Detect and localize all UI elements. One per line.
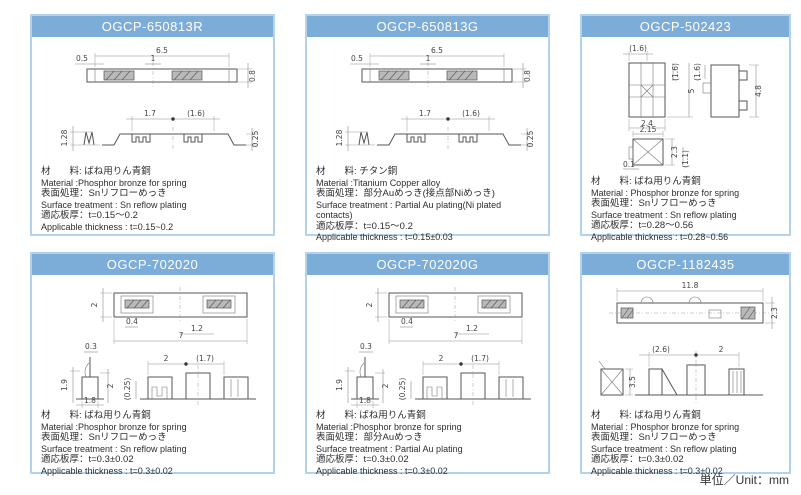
material-ja: 材 料: ばね用りん青銅 [41, 410, 264, 422]
dim-label: 1 [150, 54, 155, 63]
datasheet-page: OGCP-650813R [0, 0, 801, 495]
dim-label: 2 [365, 302, 374, 307]
surface-treatment-en: Surface treatment : Partial Au plating(N… [316, 200, 539, 221]
thickness-ja: 適応板厚：t=0.15～0.2 [316, 221, 539, 233]
front-view: 2 (1.7) (0.25) [398, 354, 531, 405]
dim-label: 1.28 [335, 129, 344, 146]
dim-label: 2.15 [639, 125, 656, 134]
unit-label: 単位／Unit：mm [700, 471, 789, 488]
dim-label: (0.25) [398, 378, 407, 401]
spec-block: 材 料: ばね用りん青銅 Material :Phosphor bronze f… [32, 166, 273, 232]
side-view: 1.7 (1.6) 1.28 0.25 [335, 109, 535, 151]
thickness-en: Applicable thickness : t=0.15~0.2 [41, 222, 264, 233]
surface-treatment-ja: 表面処理：Snリフローめっき [591, 432, 780, 444]
dim-label: 1.9 [60, 379, 69, 391]
material-en: Material : Phosphor bronze for spring [591, 422, 780, 433]
material-en: Material :Phosphor bronze for spring [41, 178, 264, 189]
side-view: 1.7 (1.6) 1.28 0.25 [60, 109, 260, 151]
dim-label: 1.7 [419, 109, 431, 118]
dim-label: 6.5 [156, 46, 168, 55]
panel-body: 6.5 0.5 1 0.8 [307, 39, 548, 236]
dim-label: 0.3 [360, 342, 372, 351]
dim-label: 1.2 [466, 324, 478, 333]
dim-label: 0.25 [251, 130, 260, 147]
part-number-header: OGCP-650813G [307, 16, 548, 37]
dim-label: (2.6) [652, 345, 670, 354]
dim-label: 0.5 [76, 54, 88, 63]
dim-label: 2 [163, 354, 168, 363]
product-panel-ogcp-650813g: OGCP-650813G [305, 14, 550, 236]
dim-label: 0.4 [401, 317, 413, 326]
dim-label: 11.8 [681, 281, 698, 290]
panel-body: 6.5 0.5 1 0.8 [32, 39, 273, 236]
dim-label: 1.8 [359, 396, 371, 405]
product-panel-ogcp-702020g: OGCP-702020G [305, 252, 550, 474]
dim-label: 2 [438, 354, 443, 363]
surface-treatment-ja: 表面処理：部分Auめっき(接点部Niめっき) [316, 188, 539, 200]
product-panel-ogcp-502423: OGCP-502423 (1.6) [580, 14, 791, 236]
material-ja: 材 料: ばね用りん青銅 [316, 410, 539, 422]
panel-body: 2 0.4 1.2 7 [32, 277, 273, 474]
dim-label: (1.1) [681, 150, 690, 168]
surface-treatment-en: Surface treatment : Sn reflow plating [591, 444, 780, 455]
spec-block: 材 料: ばね用りん青銅 Material : Phosphor bronze … [582, 176, 789, 242]
dim-label: (1.6) [187, 109, 205, 118]
panel-body: (1.6) (1.6) 5 2.4 [582, 39, 789, 236]
dim-label: 1.2 [191, 324, 203, 333]
part-number-header: OGCP-702020G [307, 254, 548, 275]
dim-label: 1.7 [144, 109, 156, 118]
dim-label: 7 [453, 331, 458, 340]
material-ja: 材 料: ばね用りん青銅 [41, 166, 264, 178]
surface-treatment-ja: 表面処理：Snリフローめっき [41, 432, 264, 444]
top-view: 2 0.4 1.2 7 [365, 287, 522, 344]
part-number-header: OGCP-502423 [582, 16, 789, 37]
thickness-en: Applicable thickness : t=0.15±0.03 [316, 232, 539, 243]
side-view: 3.5 [599, 361, 637, 395]
surface-treatment-ja: 表面処理：部分Auめっき [316, 432, 539, 444]
dim-label: (1.6) [671, 63, 680, 81]
technical-drawing: (1.6) (1.6) 5 2.4 [591, 39, 781, 175]
surface-treatment-en: Surface treatment : Sn reflow plating [591, 210, 780, 221]
product-panel-ogcp-650813r: OGCP-650813R [30, 14, 275, 236]
dim-label: 0.1 [623, 160, 635, 169]
dim-label: 2 [381, 383, 390, 388]
dim-label: 6.5 [431, 46, 443, 55]
dim-label: 1.9 [335, 379, 344, 391]
thickness-en: Applicable thickness : t=0.3±0.02 [41, 466, 264, 477]
material-en: Material :Phosphor bronze for spring [41, 422, 264, 433]
top-view: 2 0.4 1.2 7 [90, 287, 247, 344]
dim-label: 2 [106, 383, 115, 388]
front-view: (1.6) (1.6) 5 2.4 [623, 44, 696, 131]
spec-block: 材 料: ばね用りん青銅 Material : Phosphor bronze … [582, 410, 789, 476]
material-ja: 材 料: ばね用りん青銅 [591, 176, 780, 188]
surface-treatment-en: Surface treatment : Partial Au plating [316, 444, 539, 455]
dim-label: 4.8 [754, 85, 763, 97]
bottom-view: 2.15 0.1 2.3 (1.1) [623, 125, 690, 169]
dim-label: (1.7) [471, 354, 489, 363]
technical-drawing: 6.5 0.5 1 0.8 [42, 39, 264, 165]
part-number-header: OGCP-1182435 [582, 254, 789, 275]
top-view: 6.5 0.5 1 0.8 [350, 46, 532, 89]
dim-label: 0.4 [126, 317, 138, 326]
side-view: (1.6) 4.8 [693, 63, 763, 117]
technical-drawing: 2 0.4 1.2 7 [42, 277, 264, 409]
panel-body: 11.8 2.3 [582, 277, 789, 474]
material-en: Material :Titanium Copper alloy [316, 178, 539, 189]
dim-label: (1.6) [462, 109, 480, 118]
surface-treatment-en: Surface treatment : Sn reflow plating [41, 444, 264, 455]
front-view: 2 (1.7) (0.25) [123, 354, 256, 405]
spec-block: 材 料: ばね用りん青銅 Material :Phosphor bronze f… [307, 410, 548, 476]
dim-label: 3.5 [628, 376, 637, 388]
top-view: 11.8 2.3 [609, 281, 779, 329]
thickness-ja: 適応板厚：t=0.3±0.02 [41, 454, 264, 466]
thickness-ja: 適応板厚：t=0.28～0.56 [591, 220, 780, 232]
technical-drawing: 2 0.4 1.2 7 [317, 277, 539, 409]
dim-label: (1.7) [196, 354, 214, 363]
product-panel-ogcp-1182435: OGCP-1182435 [580, 252, 791, 474]
panel-body: 2 0.4 1.2 7 [307, 277, 548, 474]
dim-label: 0.25 [526, 130, 535, 147]
dim-label: 1.28 [60, 129, 69, 146]
part-number-header: OGCP-650813R [32, 16, 273, 37]
material-en: Material : Phosphor bronze for spring [591, 188, 780, 199]
thickness-ja: 適応板厚：t=0.3±0.02 [316, 454, 539, 466]
technical-drawing: 6.5 0.5 1 0.8 [317, 39, 539, 165]
part-number-header: OGCP-702020 [32, 254, 273, 275]
material-ja: 材 料: チタン銅 [316, 166, 539, 178]
top-view: 6.5 0.5 1 0.8 [75, 46, 257, 89]
material-en: Material :Phosphor bronze for spring [316, 422, 539, 433]
dim-label: (1.6) [693, 63, 702, 81]
dim-label: 0.8 [248, 70, 257, 82]
dim-label: (0.25) [123, 378, 132, 401]
material-ja: 材 料: ばね用りん青銅 [591, 410, 780, 422]
technical-drawing: 11.8 2.3 [591, 277, 781, 409]
dim-label: (1.6) [629, 44, 647, 53]
dim-label: 2 [718, 345, 723, 354]
side-view: 0.3 1.9 2 1.8 [60, 342, 115, 408]
dim-label: 0.8 [523, 70, 532, 82]
dim-label: 2.3 [770, 307, 779, 319]
dim-label: 7 [178, 331, 183, 340]
dim-label: 0.3 [85, 342, 97, 351]
side-view: 0.3 1.9 2 1.8 [335, 342, 390, 408]
thickness-ja: 適応板厚：t=0.15～0.2 [41, 210, 264, 222]
surface-treatment-ja: 表面処理：Snリフローめっき [41, 188, 264, 200]
spec-block: 材 料: ばね用りん青銅 Material :Phosphor bronze f… [32, 410, 273, 476]
panel-grid: OGCP-650813R [30, 14, 791, 474]
dim-label: 5 [687, 88, 696, 93]
dim-label: 2.3 [670, 146, 679, 158]
dim-label: 0.5 [351, 54, 363, 63]
spec-block: 材 料: チタン銅 Material :Titanium Copper allo… [307, 166, 548, 243]
dim-label: 2 [90, 302, 99, 307]
surface-treatment-ja: 表面処理：Snリフローめっき [591, 198, 780, 210]
thickness-en: Applicable thickness : t=0.28~0.56 [591, 232, 780, 243]
product-panel-ogcp-702020: OGCP-702020 [30, 252, 275, 474]
dim-label: 1 [425, 54, 430, 63]
thickness-ja: 適応板厚：t=0.3±0.02 [591, 454, 780, 466]
thickness-en: Applicable thickness : t=0.3±0.02 [316, 466, 539, 477]
surface-treatment-en: Surface treatment : Sn reflow plating [41, 200, 264, 211]
front-view: (2.6) 2 [635, 345, 763, 403]
dim-label: 1.8 [84, 396, 96, 405]
